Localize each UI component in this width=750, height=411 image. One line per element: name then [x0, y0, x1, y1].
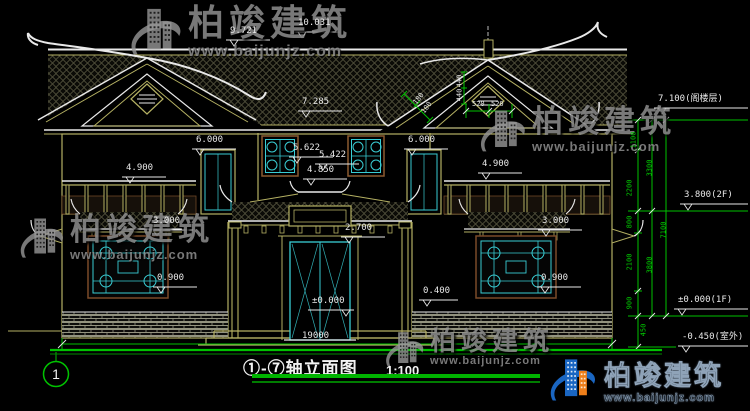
- dim-label: 19000: [302, 332, 329, 341]
- second-floor-window: [262, 136, 298, 176]
- dim-label: 3300: [647, 160, 654, 177]
- railing-right: [444, 181, 610, 214]
- dim-label: 2200: [627, 180, 634, 197]
- brand-url: www.baijunjz.com: [604, 392, 724, 404]
- title-underline: [252, 374, 540, 378]
- cad-elevation-drawing: 柏竣建筑 www.baijunjz.com 柏竣建筑 www.baijunjz.…: [0, 0, 750, 411]
- dim-label: 7100: [661, 222, 668, 239]
- first-floor-window: [71, 199, 187, 298]
- axis-number: 1: [44, 367, 68, 381]
- dim-label: 0.900: [541, 274, 568, 283]
- dim-label: 800: [627, 216, 634, 229]
- title-underline-thin: [252, 381, 540, 383]
- ground-line: [50, 350, 662, 354]
- dim-label: 2100: [627, 254, 634, 271]
- dim-label: 1100: [631, 132, 638, 149]
- brand-name: 柏竣建筑: [604, 362, 724, 392]
- brand-logo-block: 柏竣建筑 www.baijunjz.com: [543, 355, 724, 411]
- dim-label: 0.400: [423, 287, 450, 296]
- dim-label: 440: [457, 75, 464, 88]
- dim-label: 7.285: [302, 98, 329, 107]
- dim-label: 5.422: [319, 151, 346, 160]
- dim-label: 6.000: [196, 136, 223, 145]
- dim-label: 7.100(阁楼层): [658, 95, 723, 104]
- dim-label: 3.800(2F): [684, 191, 733, 200]
- dim-label: 10.031: [298, 19, 331, 28]
- plaque: [289, 206, 351, 226]
- dim-label: ±0.000: [312, 297, 345, 306]
- dim-label: 6.000: [408, 136, 435, 145]
- dim-label: 520: [491, 101, 504, 108]
- railing-left: [62, 181, 196, 214]
- dim-label: 3800: [647, 257, 654, 274]
- entrance-door: [284, 242, 356, 340]
- dim-label: 4.900: [126, 164, 153, 173]
- dim-label: 9.721: [230, 27, 257, 36]
- dim-label: 3.000: [153, 217, 180, 226]
- elevation-linework: [0, 0, 750, 411]
- dim-label: 3.000: [542, 217, 569, 226]
- dim-label: 2.700: [345, 224, 372, 233]
- dim-label: -0.450(室外): [682, 333, 743, 342]
- dim-label: 900: [627, 297, 634, 310]
- dim-label: 5.622: [293, 144, 320, 153]
- dim-label: 0.900: [157, 274, 184, 283]
- dim-label: ±0.000(1F): [678, 296, 732, 305]
- brand-logo-icon: [543, 355, 601, 411]
- dim-label: 440: [457, 89, 464, 102]
- dim-label: 450: [641, 324, 648, 337]
- dim-label: 4.900: [482, 160, 509, 169]
- attic-door: [201, 150, 235, 214]
- dim-label: 520: [472, 101, 485, 108]
- dim-label: 4.850: [307, 166, 334, 175]
